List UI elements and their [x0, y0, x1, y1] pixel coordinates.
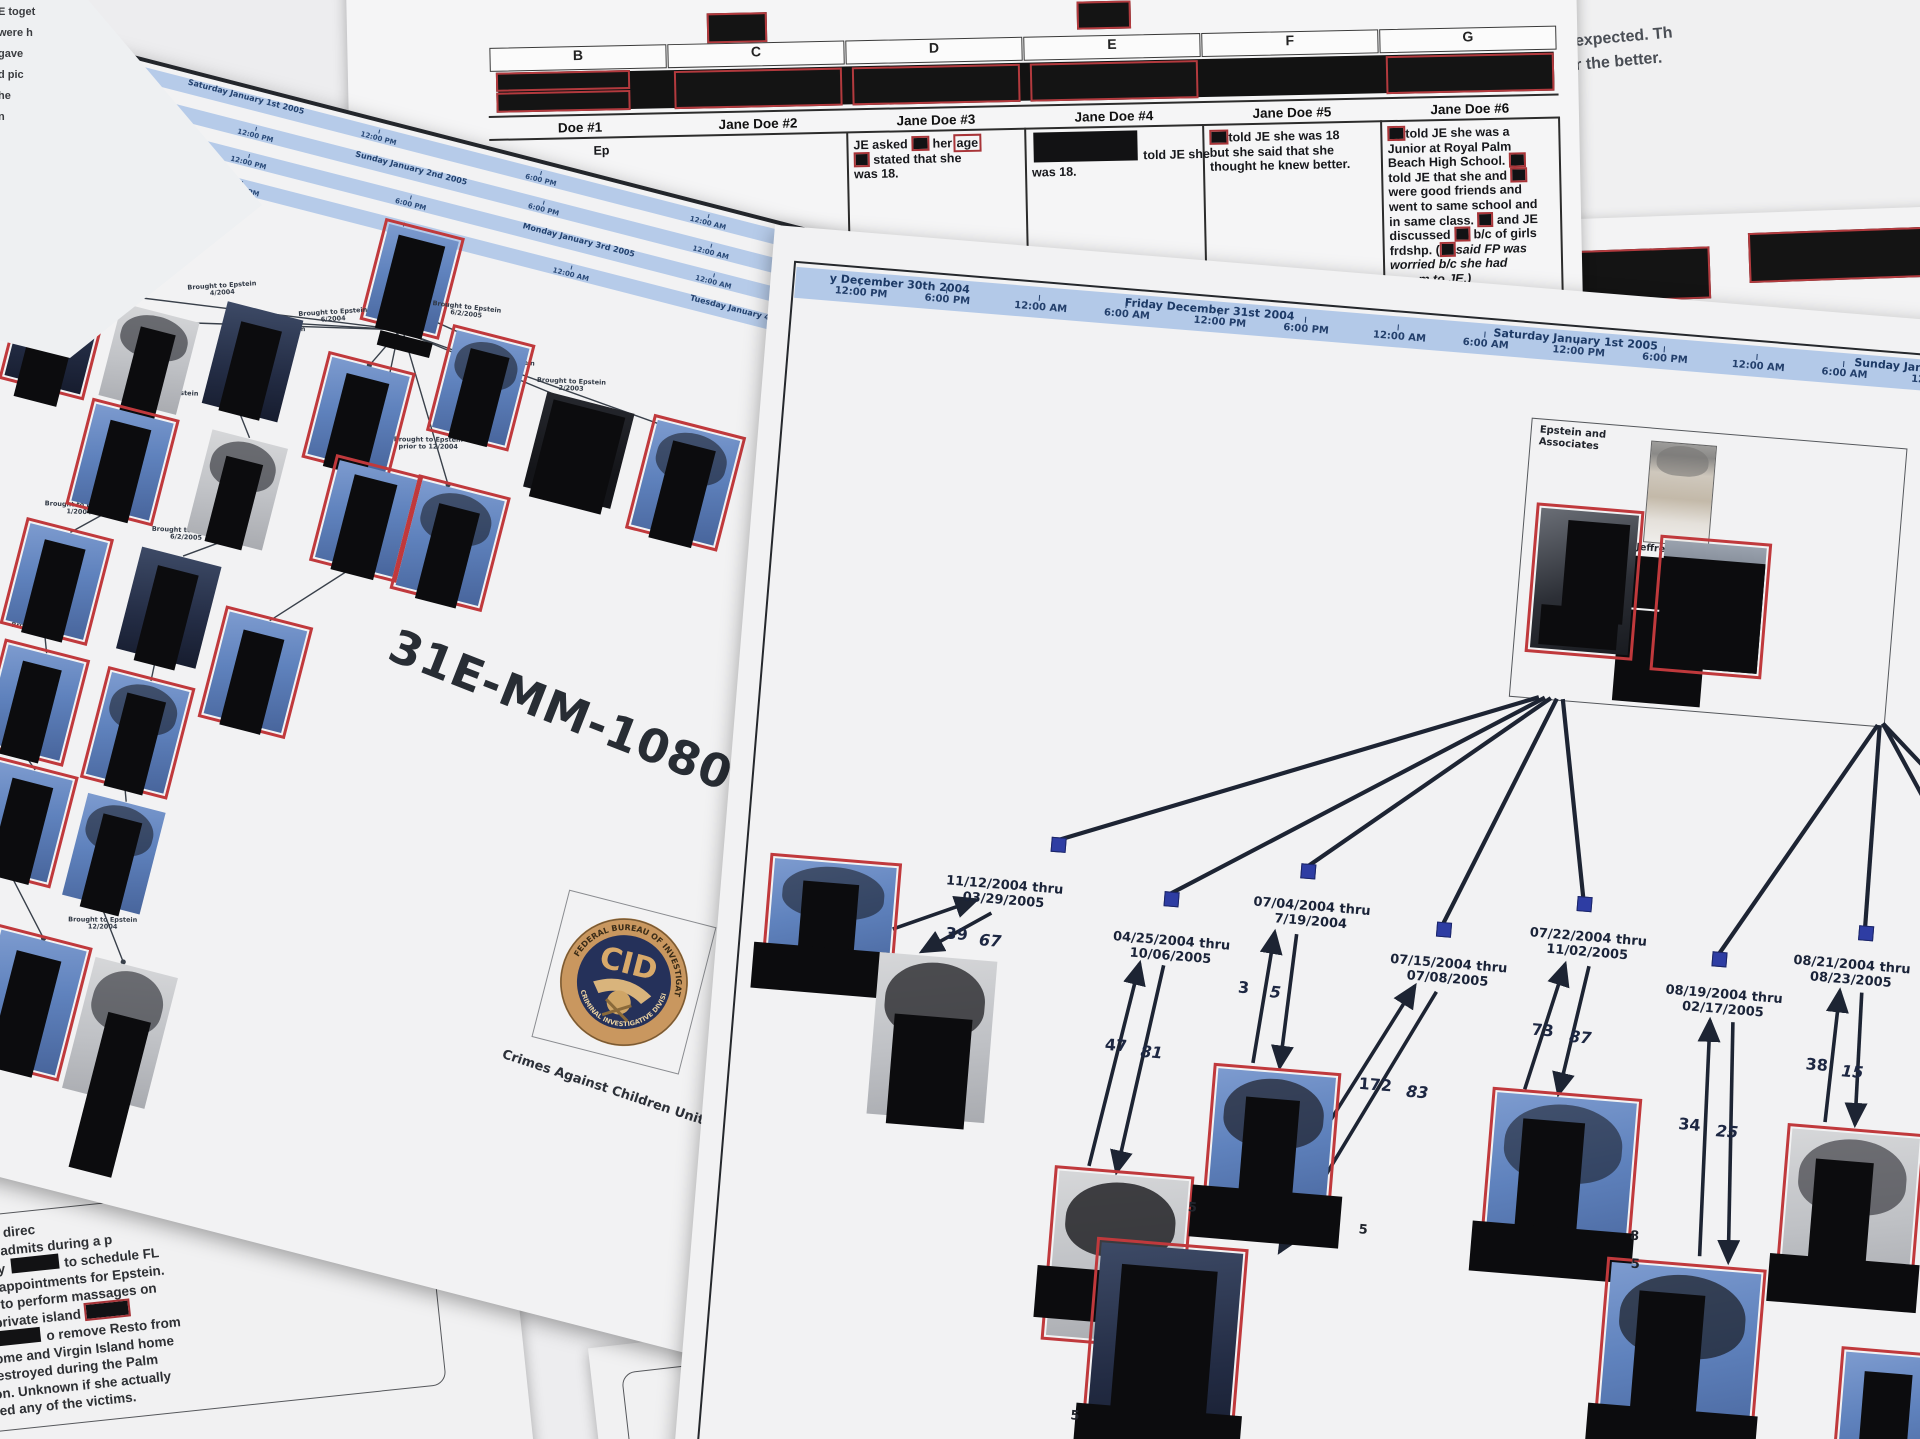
jane-doe-header: Jane Doe #2 — [669, 114, 847, 133]
redaction-box — [496, 90, 630, 113]
redaction-box — [1076, 0, 1131, 29]
visit-count: 3 — [1237, 978, 1250, 998]
column-letter: D — [929, 40, 939, 56]
redaction-box — [852, 64, 1021, 106]
date-node — [1163, 891, 1179, 907]
column-letter-cell: G — [1379, 26, 1556, 54]
date-node — [1858, 925, 1874, 941]
visit-count: 39 — [945, 923, 969, 944]
victim-photo — [1779, 1128, 1920, 1300]
visit-count: 15 — [1841, 1061, 1865, 1082]
visit-count: 47 — [1104, 1035, 1128, 1056]
date-node — [1576, 896, 1592, 912]
visit-count: 83 — [1405, 1082, 1429, 1103]
bar-digit: 5 — [1630, 1257, 1640, 1273]
redaction-box — [707, 12, 768, 43]
date-node — [1711, 951, 1727, 967]
bar-digit: 5 — [1187, 1200, 1197, 1216]
visit-count: 5 — [1269, 982, 1282, 1002]
column-letter-cell: B — [489, 44, 666, 72]
jane-doe-header: Jane Doe #3 — [847, 111, 1025, 130]
text-fragments: E toget were h gave d pic he n — [0, 2, 35, 128]
right-timeline-chart-page: y December 30th 2004 Friday December 31s… — [666, 225, 1920, 1439]
doe3-cell: JE asked her age stated that she was 18. — [853, 135, 1024, 182]
date-node — [1436, 922, 1452, 938]
redaction-box — [1030, 60, 1199, 102]
visit-count: 38 — [1805, 1054, 1829, 1075]
column-letter: G — [1462, 28, 1473, 44]
date-node — [1051, 837, 1067, 853]
column-letter-cell: E — [1023, 33, 1200, 61]
visit-count: 73 — [1531, 1020, 1555, 1041]
doe1-cell-fragment: Ep — [593, 140, 763, 158]
bar-digit: 5 — [1358, 1222, 1368, 1238]
doe5-cell: told JE she was 18 but she said that she… — [1209, 127, 1380, 174]
visit-count: 67 — [978, 930, 1002, 951]
column-letter-cell: F — [1201, 29, 1378, 57]
photo-of-scattered-fbi-documents: what is expected. Th younger the better.… — [0, 0, 1920, 1439]
jane-doe-header: Jane Doe #6 — [1381, 100, 1559, 119]
column-letter: B — [573, 47, 583, 63]
doe6-cell: told JE she was a Junior at Royal Palm B… — [1387, 124, 1560, 288]
victim-photo — [1483, 1092, 1636, 1273]
column-letter-cell: D — [845, 37, 1022, 65]
column-letter: E — [1107, 36, 1117, 52]
jane-doe-header: Jane Doe #5 — [1203, 103, 1381, 122]
edge-label: Brought to Epstein12/2004 — [68, 916, 137, 930]
column-letter: F — [1285, 32, 1294, 48]
victim-photo — [1836, 1352, 1920, 1439]
victim-photo — [1597, 1262, 1761, 1439]
visit-count: 34 — [1678, 1114, 1702, 1135]
redaction-box — [1386, 53, 1555, 95]
jane-doe-header: Doe #1 — [491, 118, 669, 137]
victim-photo — [1085, 1242, 1243, 1439]
doe4-cell: told JE she was 18. — [1031, 129, 1202, 180]
redaction-box — [496, 70, 630, 92]
redaction-box — [674, 68, 843, 110]
victim-photo — [1206, 1068, 1336, 1227]
timeline-chart-lines — [666, 225, 1920, 1439]
visit-count: 172 — [1358, 1074, 1393, 1096]
visit-count: 25 — [1715, 1121, 1739, 1142]
victim-photo — [867, 952, 998, 1123]
column-letter-cell: C — [667, 41, 844, 69]
jane-doe-header: Jane Doe #4 — [1025, 107, 1203, 126]
visit-count: 81 — [1140, 1042, 1164, 1063]
date-node — [1300, 863, 1316, 879]
redaction-bar — [1748, 226, 1920, 283]
column-letter: C — [751, 43, 761, 59]
visit-count: 87 — [1568, 1027, 1592, 1048]
bar-digit: 5 — [1070, 1408, 1080, 1424]
bar-digit: 8 — [1629, 1228, 1639, 1244]
